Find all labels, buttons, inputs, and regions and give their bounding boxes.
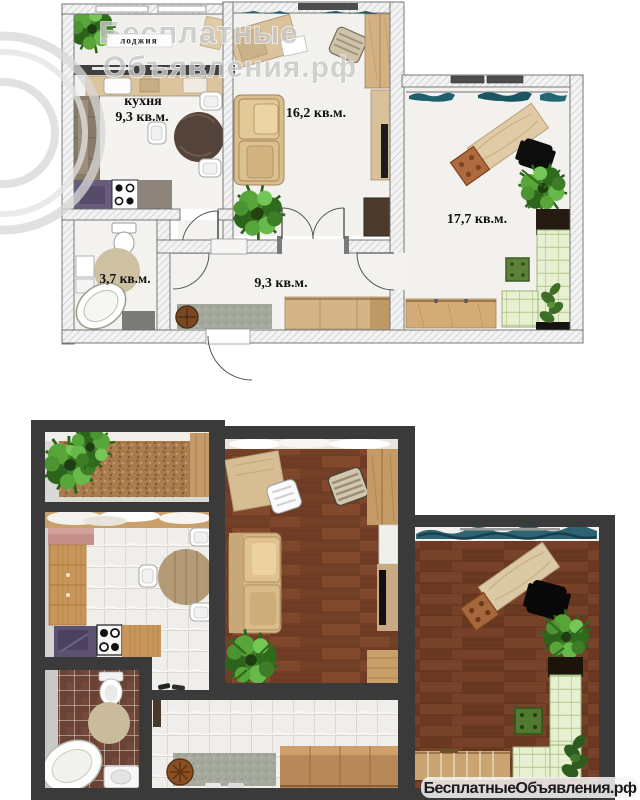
svg-text:кухня: кухня: [124, 94, 162, 109]
svg-text:БесплатныеОбъявления.рф: БесплатныеОбъявления.рф: [424, 780, 637, 797]
svg-text:17,7 кв.м.: 17,7 кв.м.: [447, 212, 507, 227]
svg-text:лоджия: лоджия: [120, 36, 158, 46]
svg-text:Объявления.рф: Объявления.рф: [103, 51, 357, 84]
svg-text:16,2 кв.м.: 16,2 кв.м.: [286, 106, 346, 121]
svg-text:9,3 кв.м.: 9,3 кв.м.: [254, 276, 307, 291]
svg-text:9,3 кв.м.: 9,3 кв.м.: [115, 110, 168, 125]
svg-text:3,7 кв.м.: 3,7 кв.м.: [99, 271, 150, 286]
